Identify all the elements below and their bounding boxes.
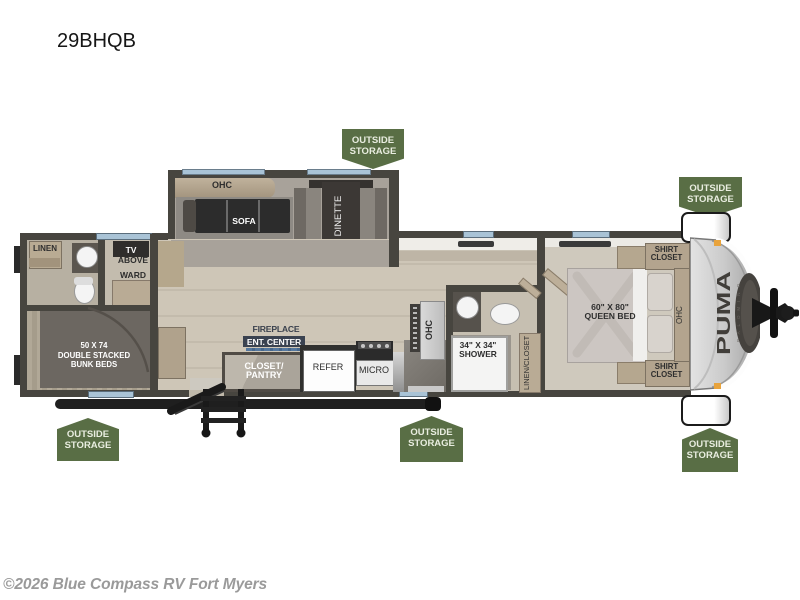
svg-text:DINETTE: DINETTE — [333, 196, 344, 237]
svg-text:PUMA: PUMA — [714, 271, 734, 355]
svg-text:OHC: OHC — [424, 320, 434, 341]
